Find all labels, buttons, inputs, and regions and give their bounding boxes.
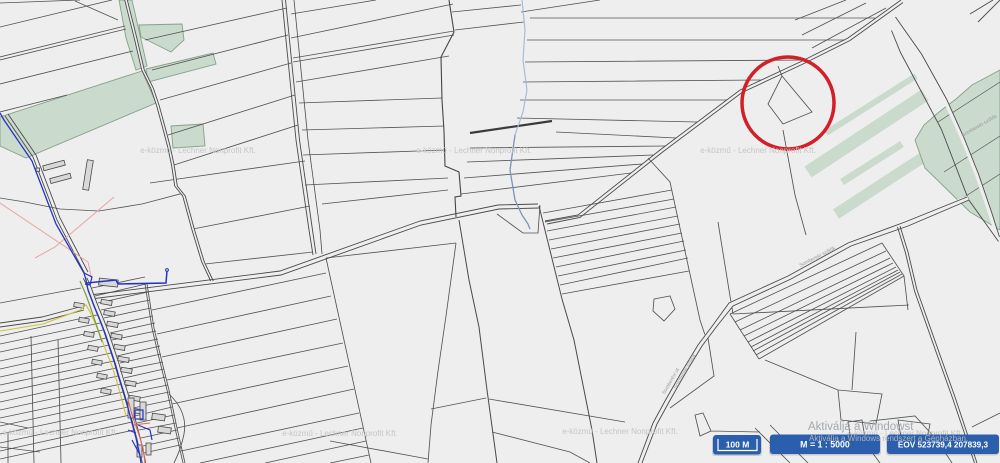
svg-text:e-közmű - Lechner Nonprofit Kf: e-közmű - Lechner Nonprofit Kft. [416,146,532,155]
svg-text:e-közmű - Lechner Nonprofit Kf: e-közmű - Lechner Nonprofit Kft. [2,428,118,437]
svg-text:e-közmű - Lechner Nonprofit Kf: e-közmű - Lechner Nonprofit Kft. [282,429,398,438]
svg-text:100 M: 100 M [726,440,750,450]
svg-text:e-közmű - Lechner Nonprofit Kf: e-közmű - Lechner Nonprofit Kft. [140,146,256,155]
svg-text:Aktiválja a Windows rendszert: Aktiválja a Windows rendszert a Gépházba… [809,434,968,443]
svg-text:Aktiválja a Windowst: Aktiválja a Windowst [808,421,914,433]
svg-text:e-közmű - Lechner Nonprofit Kf: e-közmű - Lechner Nonprofit Kft. [562,427,678,436]
svg-text:e-közmű - Lechner Nonprofit Kf: e-közmű - Lechner Nonprofit Kft. [700,146,816,155]
